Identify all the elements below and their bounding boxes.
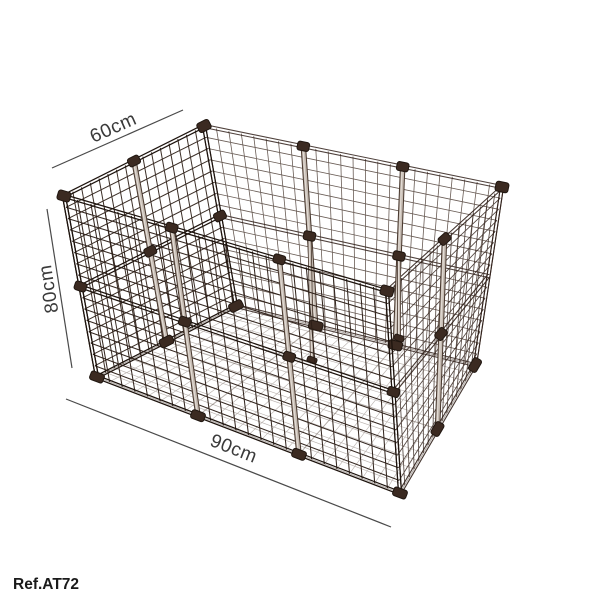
cage-wireframe — [56, 119, 509, 500]
height-dimension-label: 80cm — [35, 263, 63, 315]
back-panel-mesh — [206, 129, 500, 363]
grid-connector — [165, 222, 179, 234]
grid-connector — [437, 232, 452, 247]
grid-connector — [392, 486, 408, 499]
product-image-stage: 60cm 80cm 90cm Ref.AT72 — [0, 0, 600, 600]
grid-connector — [158, 334, 175, 348]
grid-connector — [291, 448, 307, 461]
grid-connector — [297, 141, 311, 152]
grid-connector — [495, 181, 510, 193]
product-illustration: 60cm 80cm 90cm Ref.AT72 — [0, 0, 600, 600]
grid-connector — [379, 284, 394, 297]
width-dimension-line — [66, 399, 391, 527]
grid-connector — [272, 253, 286, 265]
depth-dimension-label: 60cm — [87, 109, 140, 148]
grid-connector — [396, 161, 410, 172]
ref-code-label: Ref.AT72 — [13, 576, 79, 593]
grid-connector — [196, 119, 212, 134]
grid-connector — [303, 230, 317, 241]
grid-connector — [392, 250, 406, 261]
